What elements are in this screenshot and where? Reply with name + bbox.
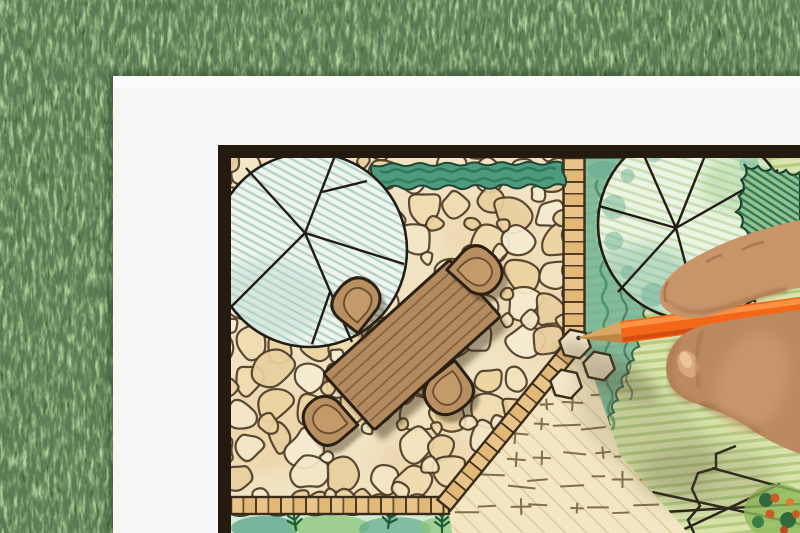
tile-border <box>231 497 449 514</box>
flagstone <box>464 218 480 230</box>
dash-symbol <box>612 512 629 513</box>
hedge-body <box>371 162 566 190</box>
foliage-dab <box>604 232 623 251</box>
flagstone <box>328 457 359 492</box>
dash-symbol <box>633 504 659 505</box>
dash-symbol <box>478 506 496 507</box>
top-hedge <box>371 162 566 190</box>
photo-garden-plan-scene <box>0 0 800 533</box>
dash-symbol <box>560 485 584 486</box>
tile-border <box>564 158 585 354</box>
flagstone <box>475 370 502 393</box>
dash-symbol <box>528 504 547 505</box>
dash-symbol <box>553 425 581 426</box>
foliage-dab <box>621 169 635 183</box>
dash-symbol <box>479 474 505 475</box>
scene-canvas <box>0 0 800 533</box>
